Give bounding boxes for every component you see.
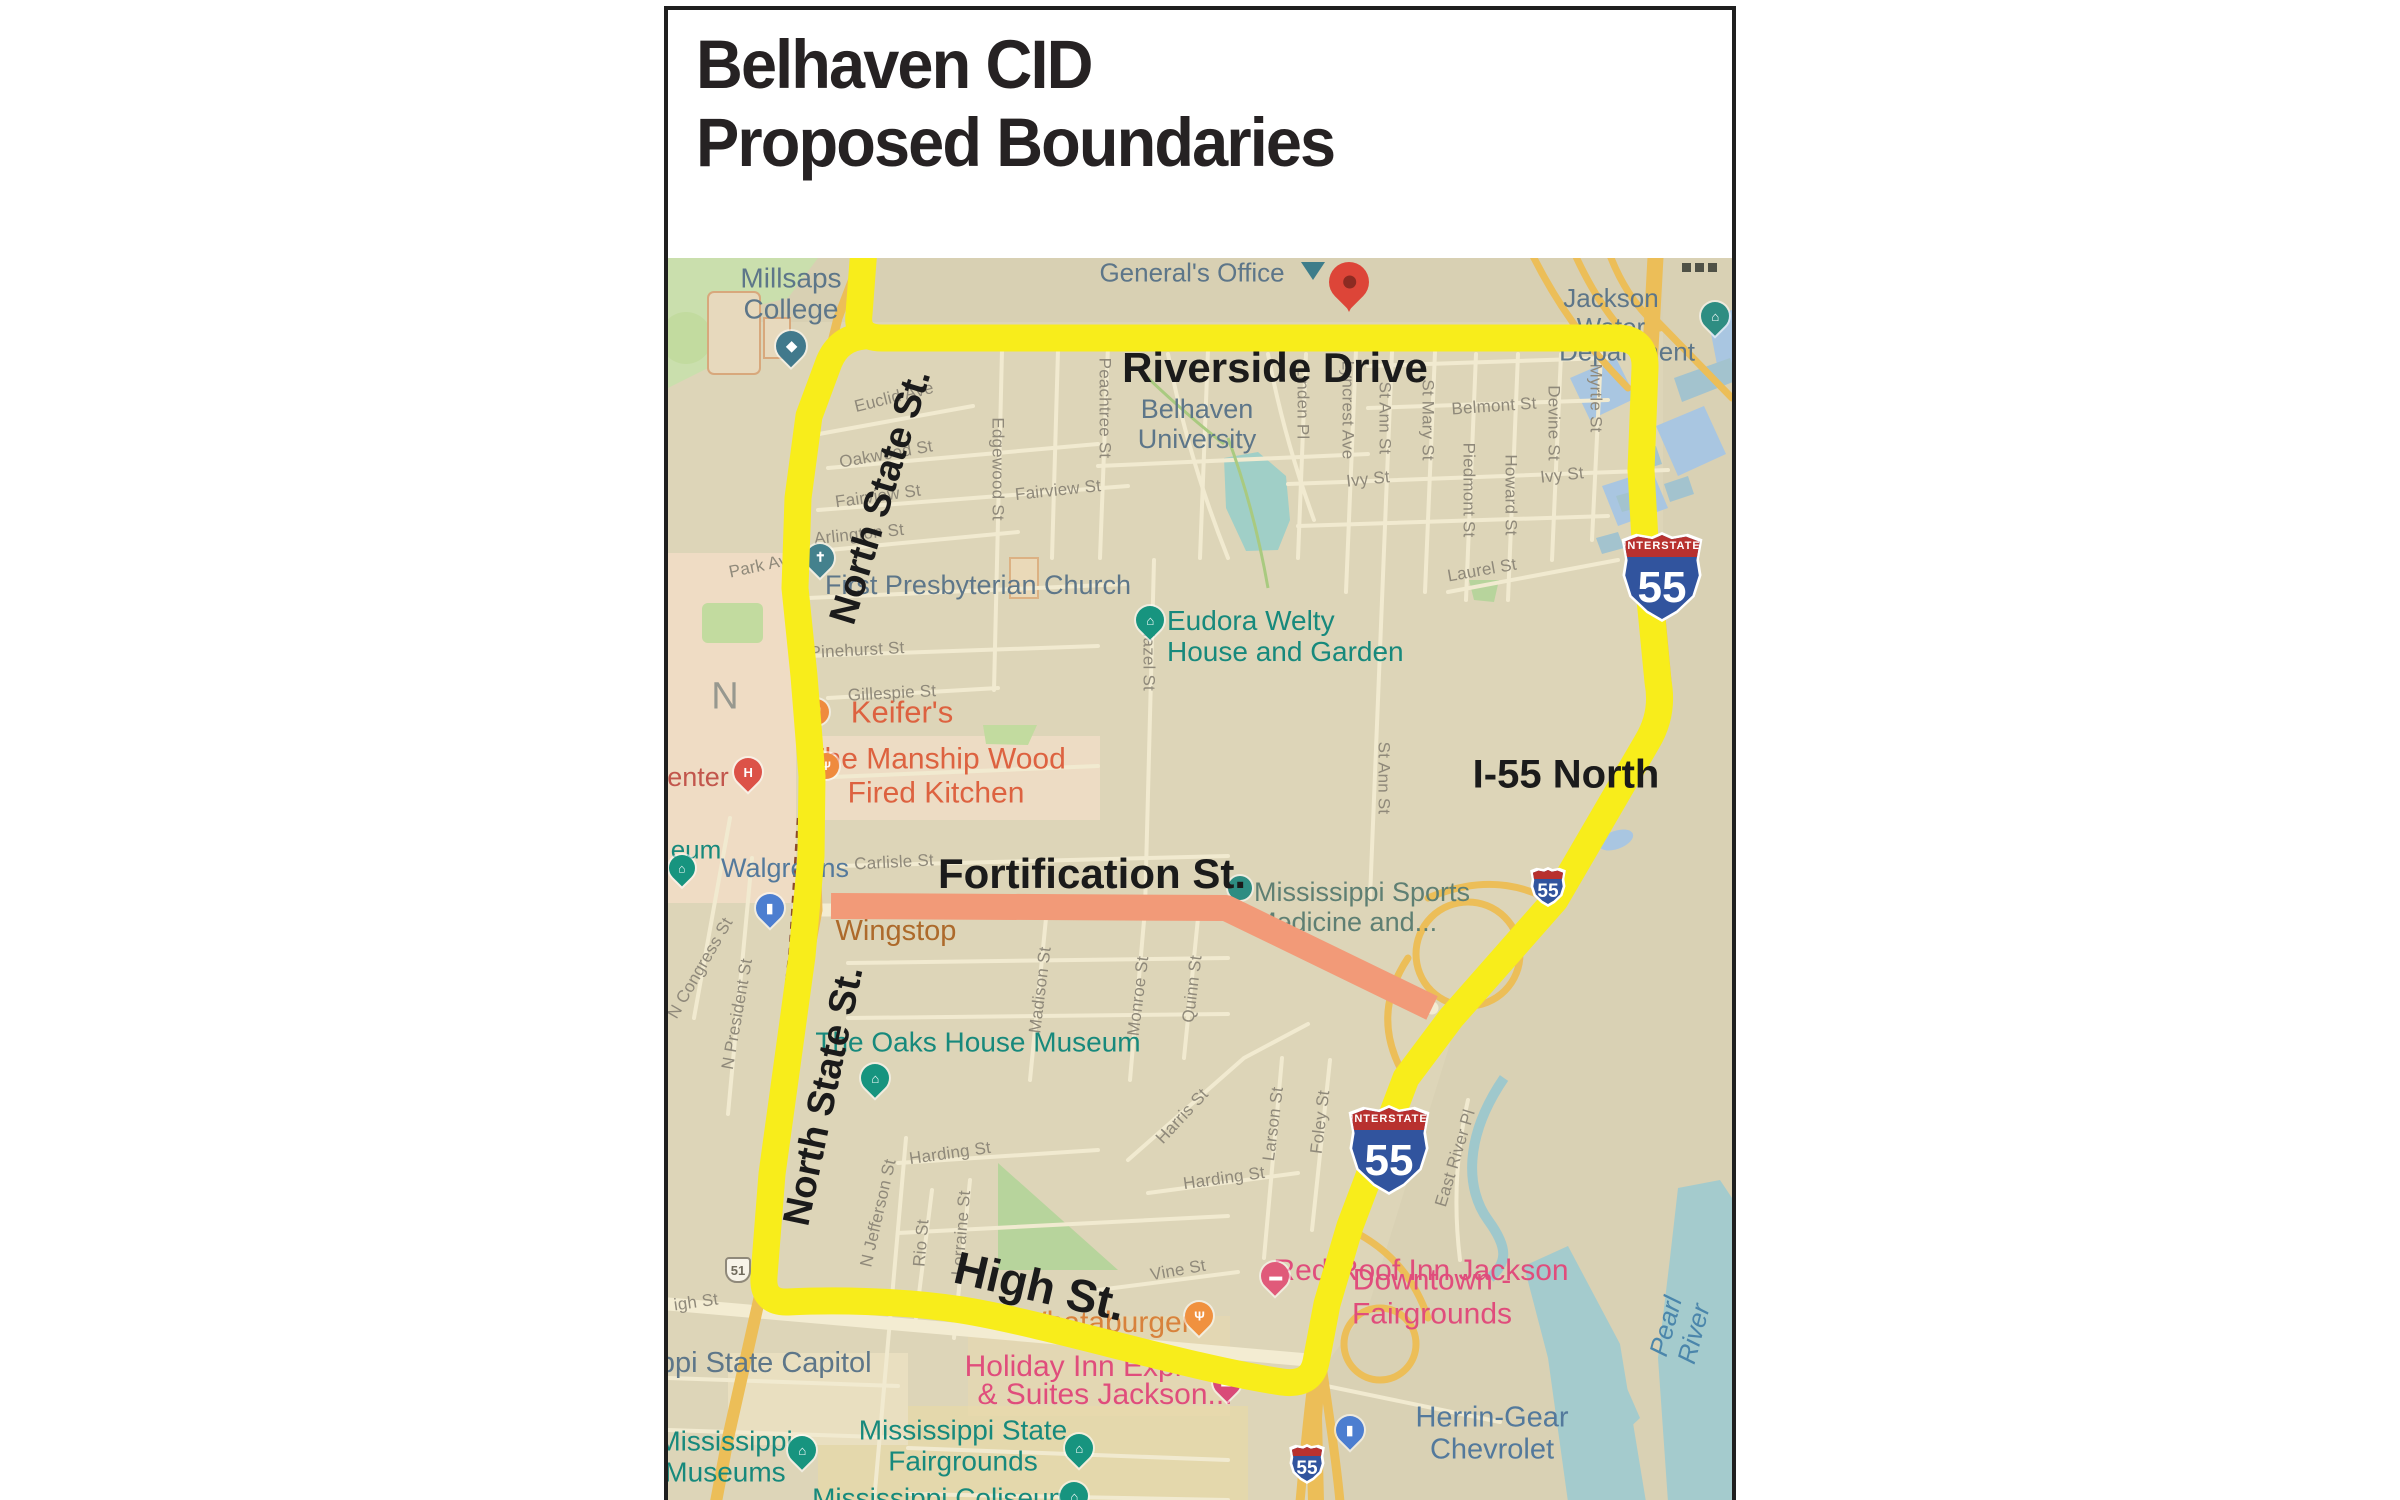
anno-north-state-st-upper: North State St.: [822, 365, 940, 630]
figure-title: Belhaven CID Proposed Boundaries: [696, 26, 1334, 182]
anno-riverside-drive: Riverside Drive: [1122, 344, 1428, 392]
map-figure-panel: Belhaven CID Proposed Boundaries: [664, 6, 1736, 1500]
anno-i55-north: I-55 North: [1473, 753, 1660, 798]
anno-high-st: High St.: [949, 1240, 1130, 1332]
anno-north-state-st-lower: North State St.: [776, 962, 873, 1229]
anno-fortification-st: Fortification St.: [938, 850, 1246, 898]
map-annotations-layer: Riverside DriveNorth State St.I-55 North…: [668, 258, 1732, 1500]
page: Belhaven CID Proposed Boundaries: [0, 0, 2400, 1500]
belhaven-map: Park AveEuclid AveOakwood StFairview StF…: [668, 258, 1732, 1500]
title-block: Belhaven CID Proposed Boundaries: [668, 10, 1732, 258]
